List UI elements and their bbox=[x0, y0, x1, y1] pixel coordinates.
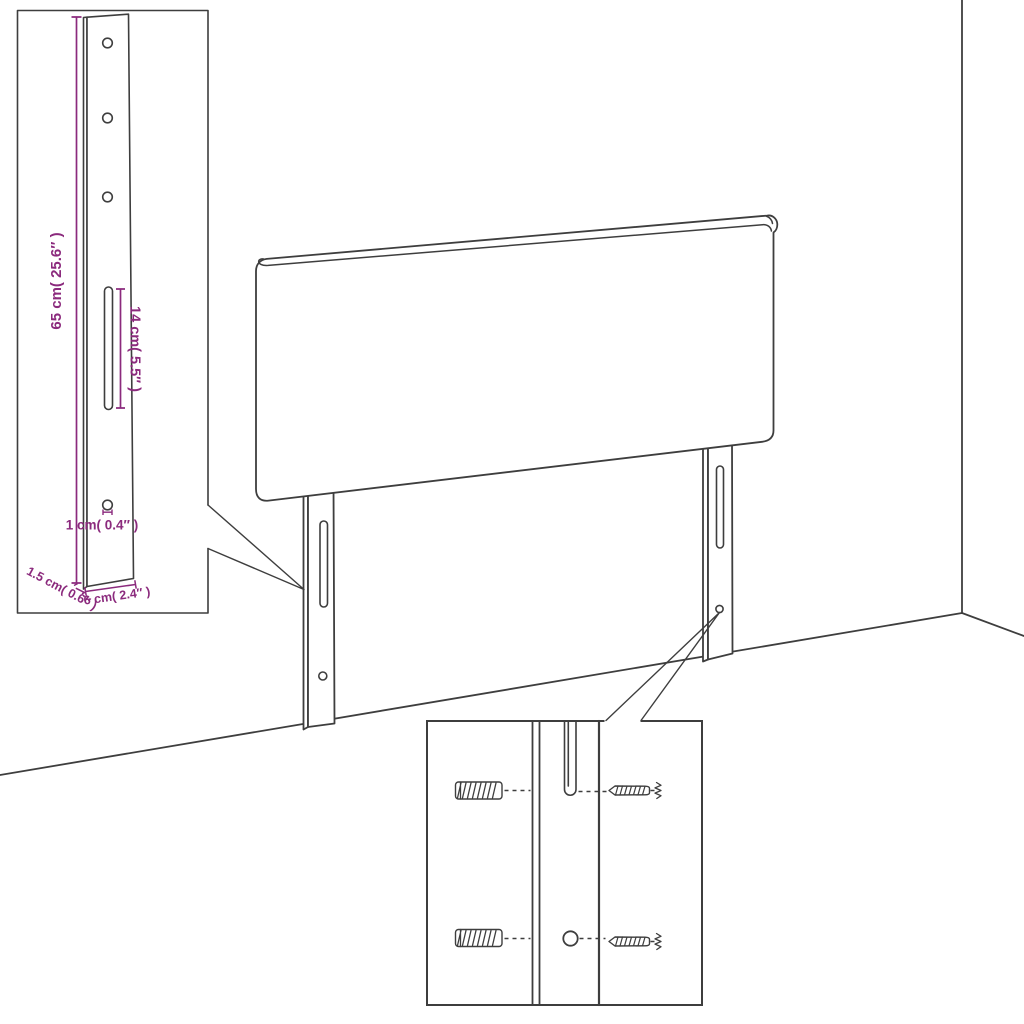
leg-detail-inset: 65 cm( 25.6″ ) 14 cm( 5.5″ ) 1 cm( 0.4″ … bbox=[18, 11, 209, 614]
left-leg-slot bbox=[320, 521, 328, 607]
right-leg bbox=[703, 437, 733, 662]
height-dimension-label: 65 cm( 25.6″ ) bbox=[48, 232, 65, 329]
floor-wall-right-line bbox=[962, 613, 1024, 636]
bracket-hole-middle bbox=[103, 113, 113, 123]
bracket-hole-top bbox=[103, 38, 113, 48]
hole-dimension-label: 1 cm( 0.4″ ) bbox=[66, 518, 139, 533]
headboard-dimension-diagram: 65 cm( 25.6″ ) 14 cm( 5.5″ ) 1 cm( 0.4″ … bbox=[0, 0, 1024, 1024]
strip-hole bbox=[563, 931, 577, 945]
headboard-outline bbox=[256, 215, 777, 500]
mounting-hardware-inset bbox=[427, 721, 702, 1005]
bracket-bottom-hole bbox=[103, 500, 113, 510]
left-leg-hole bbox=[319, 672, 327, 680]
headboard-panel bbox=[256, 215, 777, 500]
left-inset-callout-lines bbox=[208, 505, 304, 590]
bracket-slot bbox=[105, 287, 113, 410]
slot-dimension-label: 14 cm( 5.5″ ) bbox=[127, 306, 143, 392]
left-leg bbox=[304, 485, 335, 730]
right-leg-slot bbox=[717, 466, 724, 548]
bracket-hole-lower bbox=[103, 192, 113, 202]
right-inset-callout-lines bbox=[606, 613, 720, 721]
right-leg-hole bbox=[716, 605, 723, 612]
